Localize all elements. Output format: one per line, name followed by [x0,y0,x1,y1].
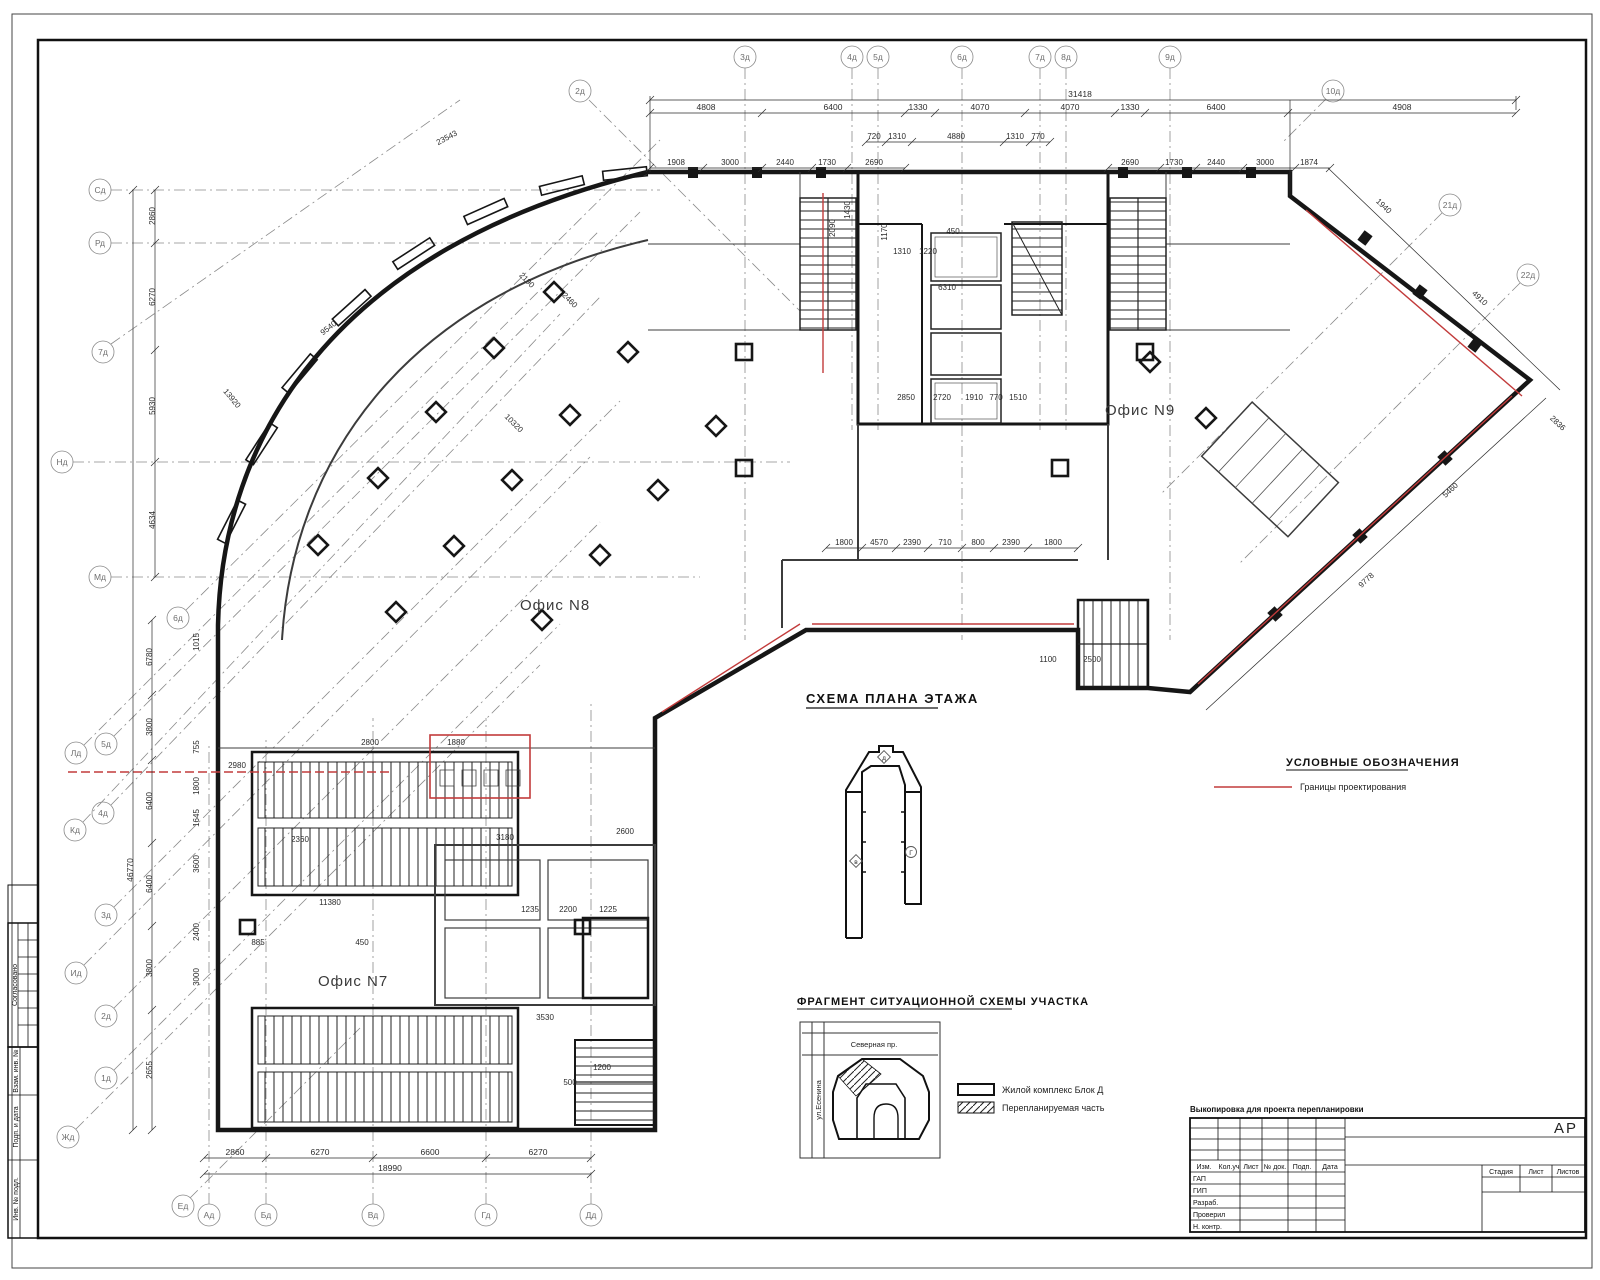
dim-label: 1430 [843,201,852,219]
title-block: Выкопировка для проекта перепланировки А… [1190,1105,1585,1232]
dim-label: 2190 [517,271,536,290]
stamp-row-label: Подп. и дата [13,1106,20,1147]
dim-label: 1310 [893,247,911,256]
tb-row: ГИП [1193,1188,1207,1195]
axis-label: 6д [957,52,967,62]
dim-label: 6400 [145,875,154,893]
tb-row: ГАП [1193,1176,1206,1183]
dim-label: 1645 [192,809,201,827]
design-boundary [68,193,1522,798]
dim-label: 2390 [1002,538,1020,547]
dim-label: 2200 [559,905,577,914]
wc-right-wing [1202,402,1339,537]
tb-col: № док. [1264,1164,1286,1171]
title-block-note: Выкопировка для проекта перепланировки [1190,1105,1364,1114]
dim-label: 2860 [226,1147,245,1157]
dim-label: 3800 [145,959,154,977]
dim-label: 5460 [1441,480,1461,499]
dim-label: 10320 [503,412,525,434]
axis-label: Гд [482,1210,491,1220]
block-n7-core [218,748,655,1128]
axis-label: 22д [1521,270,1535,280]
dim-label: 755 [192,740,201,754]
dim-label: 1510 [1009,393,1027,402]
dim-label: 1730 [818,158,836,167]
dim-label: 1310 [1006,132,1024,141]
stamp-row-label: Взам. инв. № [13,1049,20,1092]
dim-label: 450 [946,227,960,236]
dim-label: 3530 [536,1013,554,1022]
dim-label: 2390 [903,538,921,547]
axis-label: 4д [98,808,108,818]
dim-label: 720 [867,132,881,141]
axis-label: Вд [368,1210,379,1220]
dim-label: 4808 [697,102,716,112]
axis-label: 2д [575,86,585,96]
dim-label: 23543 [435,128,459,147]
axis-label: Лд [71,748,82,758]
dim-label: 3600 [192,855,201,873]
axis-label: Жд [62,1132,75,1142]
dim-label: 1170 [880,223,889,241]
dim-label: 18990 [378,1163,402,1173]
title-block-code: АР [1554,1120,1578,1137]
tb-col: Изм. [1197,1164,1212,1171]
dim-label: 2090 [828,219,837,237]
street-label-top: Северная пр. [851,1040,898,1049]
dim-label: 11380 [319,898,341,907]
dim-label: 2440 [1207,158,1225,167]
dim-label: 3000 [1256,158,1274,167]
dim-label: 885 [251,938,265,947]
dim-label: 2690 [865,158,883,167]
dim-label: 6400 [145,792,154,810]
dim-label: 1100 [1039,655,1057,664]
dim-label: 3180 [496,833,514,842]
axis-label: 3д [740,52,750,62]
axis-label: 5д [873,52,883,62]
swatch-solid [958,1084,994,1095]
dim-label: 3800 [145,718,154,736]
dim-label: 800 [971,538,985,547]
axis-label: 2д [101,1011,111,1021]
dim-label: 4908 [1393,102,1412,112]
axis-label: 7д [1035,52,1045,62]
axis-label: Мд [94,572,106,582]
site-fragment-title: ФРАГМЕНТ СИТУАЦИОННОЙ СХЕМЫ УЧАСТКА [797,995,1089,1008]
dim-label: 2800 [361,738,379,747]
dim-label: 1220 [919,247,937,256]
tb-col: Лист [1243,1164,1259,1171]
dim-label: 6780 [145,648,154,666]
tb-col: Дата [1322,1164,1338,1171]
axis-label: 8д [1061,52,1071,62]
axis-label: 9д [1165,52,1175,62]
tb-col: Подп. [1293,1164,1312,1171]
dim-label: 2860 [148,207,157,225]
dim-label: 1015 [192,633,201,651]
dim-label: 1940 [1374,197,1394,216]
dim-label: 2655 [145,1061,154,1079]
axis-label: Ид [70,968,81,978]
scheme-marker: д [882,755,886,762]
dim-label: 4070 [971,102,990,112]
dim-label: 450 [355,938,369,947]
fragment-legend-hatch: Перепланируемая часть [1002,1103,1105,1113]
dim-label: 2360 [291,835,309,844]
dim-label: 2460 [560,291,579,310]
dim-label: 3000 [721,158,739,167]
dim-label: 1908 [667,158,685,167]
tb-stage: Листов [1557,1169,1580,1176]
dim-label: 6400 [1207,102,1226,112]
dim-label: 9778 [1357,570,1377,589]
axis-label: 1д [101,1073,111,1083]
dim-label: 6600 [421,1147,440,1157]
dim-label: 2836 [1548,414,1568,433]
dim-label: 6270 [311,1147,330,1157]
site-fragment: ФРАГМЕНТ СИТУАЦИОННОЙ СХЕМЫ УЧАСТКА Севе… [797,995,1105,1158]
stamp-row-label: Инв. № подл. [13,1177,20,1221]
axis-label: 10д [1326,86,1340,96]
building-outline [218,172,1530,1130]
dim-label: 2500 [1083,655,1101,664]
dim-label: 4634 [148,511,157,529]
dim-label: 1200 [593,1063,611,1072]
dim-label: 46770 [125,858,135,882]
dim-label: 1910 [965,393,983,402]
dim-label: 5930 [148,397,157,415]
axis-label: 21д [1443,200,1457,210]
dim-label: 500 [563,1078,577,1087]
axis-label: 4д [847,52,857,62]
axis-label: 7д [98,347,108,357]
dim-label: 710 [938,538,952,547]
tb-col: Кол.уч [1219,1164,1240,1171]
dim-label: 4910 [1470,289,1490,308]
axis-label: Бд [261,1210,272,1220]
legend: УСЛОВНЫЕ ОБОЗНАЧЕНИЯ Границы проектирова… [1214,757,1460,792]
tb-row: Н. контр. [1193,1224,1222,1231]
dim-label: 1730 [1165,158,1183,167]
axis-label: Ад [204,1210,215,1220]
floor-scheme: СХЕМА ПЛАНА ЭТАЖА д в Г [806,691,979,938]
dim-label: 1235 [521,905,539,914]
dim-label: 1874 [1300,158,1318,167]
dim-label: 6270 [148,288,157,306]
building-plan: Офис N7 Офис N8 Офис N9 [68,167,1530,1130]
central-core [800,172,1166,424]
stamp-agreed-label: Согласовано [12,964,19,1006]
axis-label: 6д [173,613,183,623]
swatch-hatch [958,1102,994,1113]
axis-label: Сд [94,185,105,195]
dim-label: 6400 [824,102,843,112]
office-label-n8: Офис N8 [520,597,590,614]
dim-label: 770 [1031,132,1045,141]
axis-label: Нд [56,457,67,467]
dim-label: 2600 [616,827,634,836]
dim-label: 4070 [1061,102,1080,112]
axis-label: Дд [586,1210,597,1220]
dim-label: 2690 [1121,158,1139,167]
axis-label: 5д [101,739,111,749]
floor-scheme-title: СХЕМА ПЛАНА ЭТАЖА [806,691,979,706]
dim-label: 2980 [228,761,246,770]
dim-label: 3000 [192,968,201,986]
dim-label: 1330 [1121,102,1140,112]
dim-label: 2720 [933,393,951,402]
dim-label: 1225 [599,905,617,914]
dim-label: 1330 [909,102,928,112]
axis-label: Ед [178,1201,189,1211]
tb-stage: Стадия [1489,1169,1513,1176]
dim-label: 13920 [221,387,243,410]
dim-label: 770 [989,393,1003,402]
dim-label: 31418 [1068,89,1092,99]
floor-plan-drawing: Согласовано Взам. инв. № Подп. и дата Ин… [0,0,1600,1280]
dim-label: 4880 [947,132,965,141]
tb-stage: Лист [1528,1169,1544,1176]
dim-label: 1880 [447,738,465,747]
scheme-marker: в [854,859,858,866]
axis-label: 3д [101,910,111,920]
dim-label: 1800 [1044,538,1062,547]
axis-label: Рд [95,238,105,248]
dim-label: 1310 [888,132,906,141]
dim-label: 6270 [529,1147,548,1157]
dim-label: 4570 [870,538,888,547]
office-label-n9: Офис N9 [1105,402,1175,419]
dim-label: 6310 [938,283,956,292]
tb-row: Разраб. [1193,1199,1218,1207]
axis-label: Кд [70,825,80,835]
fragment-legend-solid: Жилой комплекс Блок Д [1002,1085,1103,1095]
dim-label: 1800 [835,538,853,547]
dim-label: 1800 [192,777,201,795]
dim-label: 2440 [776,158,794,167]
arc-windows [218,167,648,544]
dim-label: 2850 [897,393,915,402]
tb-row: Проверил [1193,1212,1225,1219]
dim-label: 2400 [192,923,201,941]
office-label-n7: Офис N7 [318,973,388,990]
scheme-marker: Г [909,850,913,857]
legend-title: УСЛОВНЫЕ ОБОЗНАЧЕНИЯ [1286,757,1460,769]
drawing-sheet: Согласовано Взам. инв. № Подп. и дата Ин… [0,0,1600,1280]
street-label-left: ул.Есенина [814,1079,823,1119]
legend-item-boundary: Границы проектирования [1300,782,1406,792]
